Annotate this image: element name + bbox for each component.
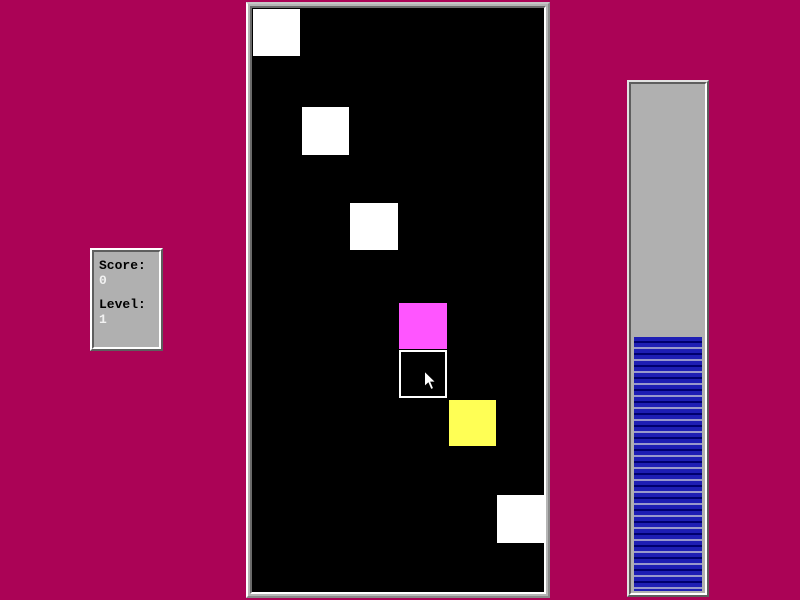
level-label: Level: <box>99 297 154 312</box>
level-value: 1 <box>99 312 154 327</box>
white-square-3[interactable] <box>350 203 398 250</box>
score-value: 0 <box>99 273 154 288</box>
magenta-square[interactable] <box>399 303 447 349</box>
game-board[interactable] <box>250 6 546 594</box>
score-panel: Score: 0 Level: 1 <box>90 248 163 351</box>
white-square-1[interactable] <box>253 9 300 56</box>
game-board-frame <box>246 2 550 598</box>
game-screen: { "screen": { "width": 800, "height": 60… <box>0 0 800 600</box>
timer-bar-fill <box>634 337 702 592</box>
mouse-cursor-icon <box>422 370 438 392</box>
timer-bar <box>629 82 707 595</box>
yellow-square[interactable] <box>449 400 496 446</box>
score-panel-body: Score: 0 Level: 1 <box>92 250 161 349</box>
timer-bar-frame <box>627 80 709 597</box>
white-square-2[interactable] <box>302 107 349 155</box>
white-square-4[interactable] <box>497 495 544 543</box>
score-label: Score: <box>99 258 154 273</box>
